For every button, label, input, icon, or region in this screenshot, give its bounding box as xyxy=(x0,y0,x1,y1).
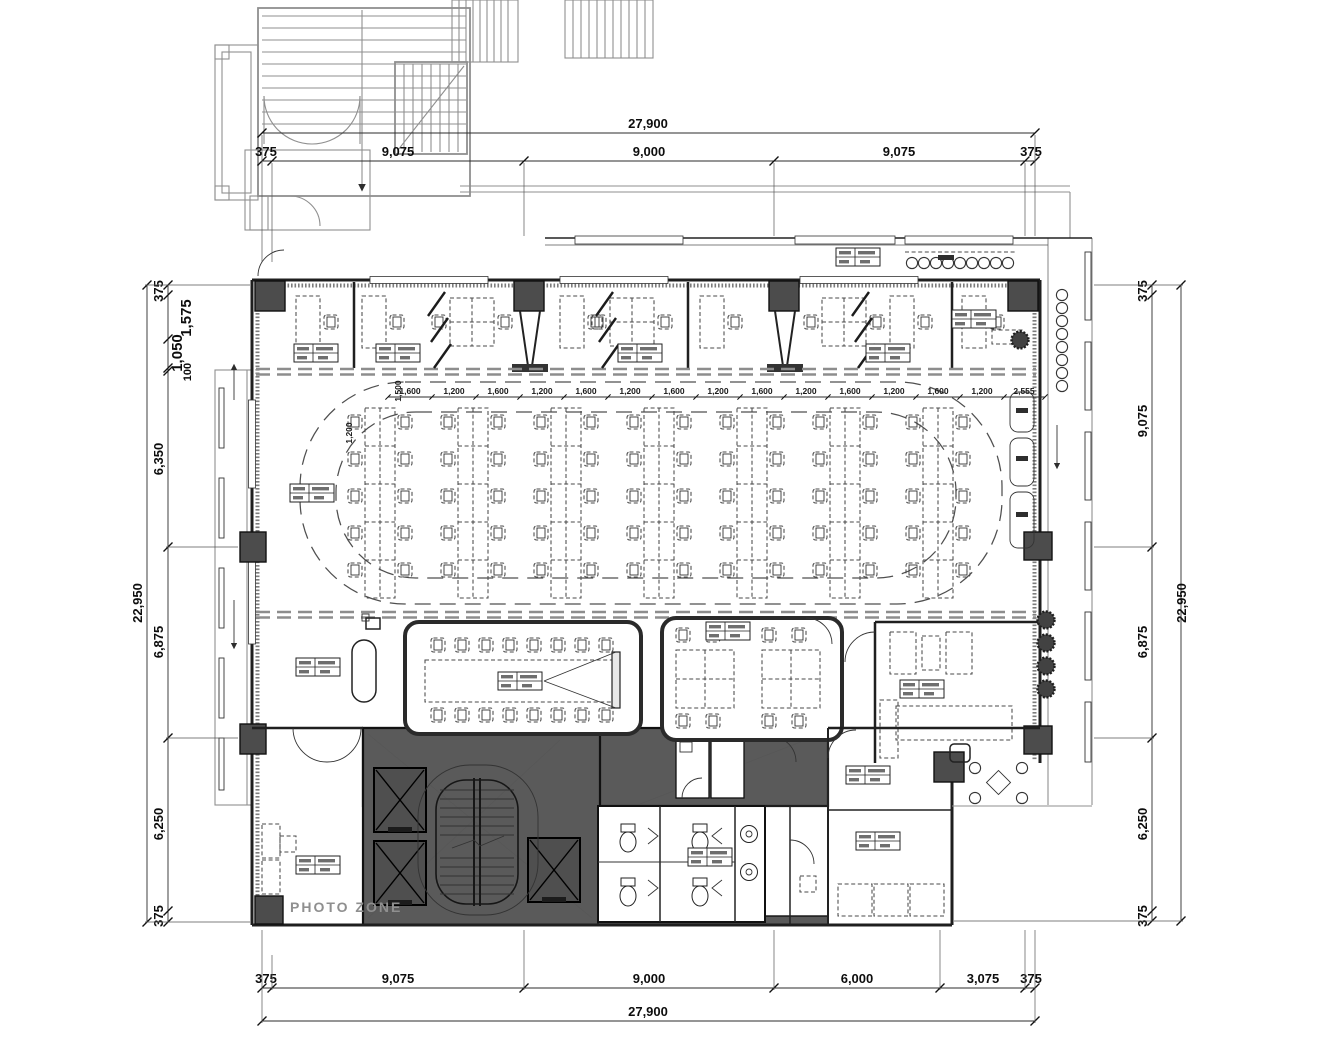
room-tag xyxy=(952,310,996,328)
dim-seg: 375 xyxy=(1135,280,1150,302)
room-tag xyxy=(706,622,750,640)
toilet xyxy=(692,878,708,906)
dim-seg: 6,875 xyxy=(151,626,166,659)
open-office: 1,600 1,200 1,600 1,200 1,600 1,200 1,60… xyxy=(256,380,1048,617)
dim-seg: 6,350 xyxy=(151,443,166,476)
projection-screen xyxy=(612,652,620,708)
dim-total-top: 27,900 xyxy=(628,116,668,131)
door-slash xyxy=(596,292,619,368)
sink xyxy=(741,864,758,881)
plant xyxy=(1038,681,1055,698)
dim-seg: 6,875 xyxy=(1135,626,1150,659)
desk-dim: 1,600 xyxy=(751,386,773,396)
door-slash xyxy=(428,292,451,368)
top-office-band xyxy=(256,282,1036,375)
meeting-room-small xyxy=(662,618,842,740)
shaft-room xyxy=(711,736,744,798)
plant xyxy=(1038,635,1055,652)
dimensions-right: 375 9,075 6,875 6,250 375 22,950 xyxy=(954,280,1189,927)
dim-seg: 6,000 xyxy=(841,971,874,986)
room-tag xyxy=(856,832,900,850)
desk-dim: 1,200 xyxy=(795,386,817,396)
hatched-stair-band-right xyxy=(565,0,653,58)
door-arc xyxy=(790,840,814,864)
room-tag xyxy=(618,344,662,362)
dimensions-left: 375 1,575 1,050 100 6,350 6,875 6,250 37… xyxy=(130,280,250,927)
floor-plan-canvas: 1,600 1,200 1,600 1,200 1,600 1,200 1,60… xyxy=(0,0,1336,1058)
dim-total-left: 22,950 xyxy=(130,583,145,623)
right-balcony xyxy=(1048,238,1092,805)
door-arc xyxy=(845,632,875,662)
dim-seg: 100 xyxy=(182,363,194,381)
floor-plan-drawing: 1,600 1,200 1,600 1,200 1,600 1,200 1,60… xyxy=(0,0,1336,1058)
desk-dim-vertical: 1,200 xyxy=(344,422,354,444)
dim-seg: 375 xyxy=(1020,144,1042,159)
dim-seg: 375 xyxy=(151,280,166,302)
desk-dim: 1,200 xyxy=(619,386,641,396)
dim-seg: 375 xyxy=(255,971,277,986)
exterior-stair-treads xyxy=(262,16,466,124)
entry-double-door xyxy=(264,96,360,144)
dim-seg: 9,075 xyxy=(1135,405,1150,438)
room-tag xyxy=(296,658,340,676)
sink xyxy=(741,826,758,843)
room-tag xyxy=(296,856,340,874)
desk-dim: 1,200 xyxy=(883,386,905,396)
desk-dim: 1,200 xyxy=(971,386,993,396)
standing-table xyxy=(352,640,376,702)
elevator xyxy=(528,838,580,902)
room-tag xyxy=(294,344,338,362)
lounge xyxy=(845,612,1055,764)
dim-seg: 375 xyxy=(255,144,277,159)
room-tag xyxy=(290,484,334,502)
dim-seg: 6,250 xyxy=(151,808,166,841)
dim-seg: 1,575 xyxy=(178,299,195,337)
dimensions-bottom: 375 9,075 9,000 6,000 3,075 375 27,900 xyxy=(255,930,1042,1026)
vestibule-door-arc xyxy=(290,196,320,226)
dim-seg: 6,250 xyxy=(1135,808,1150,841)
plant xyxy=(1038,612,1055,629)
plant xyxy=(1012,332,1029,349)
room-tag xyxy=(498,672,542,690)
room-tag xyxy=(688,848,732,866)
toilet xyxy=(620,878,636,906)
desk-dim: 1,600 xyxy=(575,386,597,396)
restrooms xyxy=(598,806,765,922)
desk-benches xyxy=(348,408,970,598)
room-tag xyxy=(836,248,880,266)
room-tag xyxy=(376,344,420,362)
dim-seg: 9,075 xyxy=(382,971,415,986)
plant xyxy=(1038,658,1055,675)
terrace-table xyxy=(986,770,1010,794)
dim-seg: 9,075 xyxy=(883,144,916,159)
meeting-room-large xyxy=(405,622,641,734)
circulation-loop-inner xyxy=(336,412,956,578)
room-tag xyxy=(846,766,890,784)
desk-dim: 1,600 xyxy=(663,386,685,396)
room-tag xyxy=(866,344,910,362)
dim-seg: 375 xyxy=(1020,971,1042,986)
desk-dim: 1,200 xyxy=(531,386,553,396)
desk-dim-vertical: 1,500 xyxy=(393,380,403,402)
dim-seg: 3,075 xyxy=(967,971,1000,986)
shaft-room xyxy=(676,736,709,798)
dim-total-bottom: 27,900 xyxy=(628,1004,668,1019)
dim-seg: 375 xyxy=(151,905,166,927)
hatched-stair-band-left xyxy=(452,0,518,62)
desk-dim: 1,200 xyxy=(443,386,465,396)
dim-seg: 9,000 xyxy=(633,971,666,986)
desk-dim: 1,200 xyxy=(707,386,729,396)
photo-zone-label: PHOTO ZONE xyxy=(290,899,402,915)
dim-total-right: 22,950 xyxy=(1174,583,1189,623)
desk-dim: 1,600 xyxy=(839,386,861,396)
desk-dim: 1,600 xyxy=(487,386,509,396)
dim-seg: 9,075 xyxy=(382,144,415,159)
room-tag xyxy=(900,680,944,698)
dim-seg: 375 xyxy=(1135,905,1150,927)
dim-seg: 9,000 xyxy=(633,144,666,159)
right-wall-cabinets xyxy=(1010,392,1034,548)
outdoor-terrace xyxy=(952,762,1092,806)
toilet xyxy=(620,824,636,852)
top-terrace xyxy=(545,236,1092,269)
desk-dim: 1,600 xyxy=(927,386,949,396)
